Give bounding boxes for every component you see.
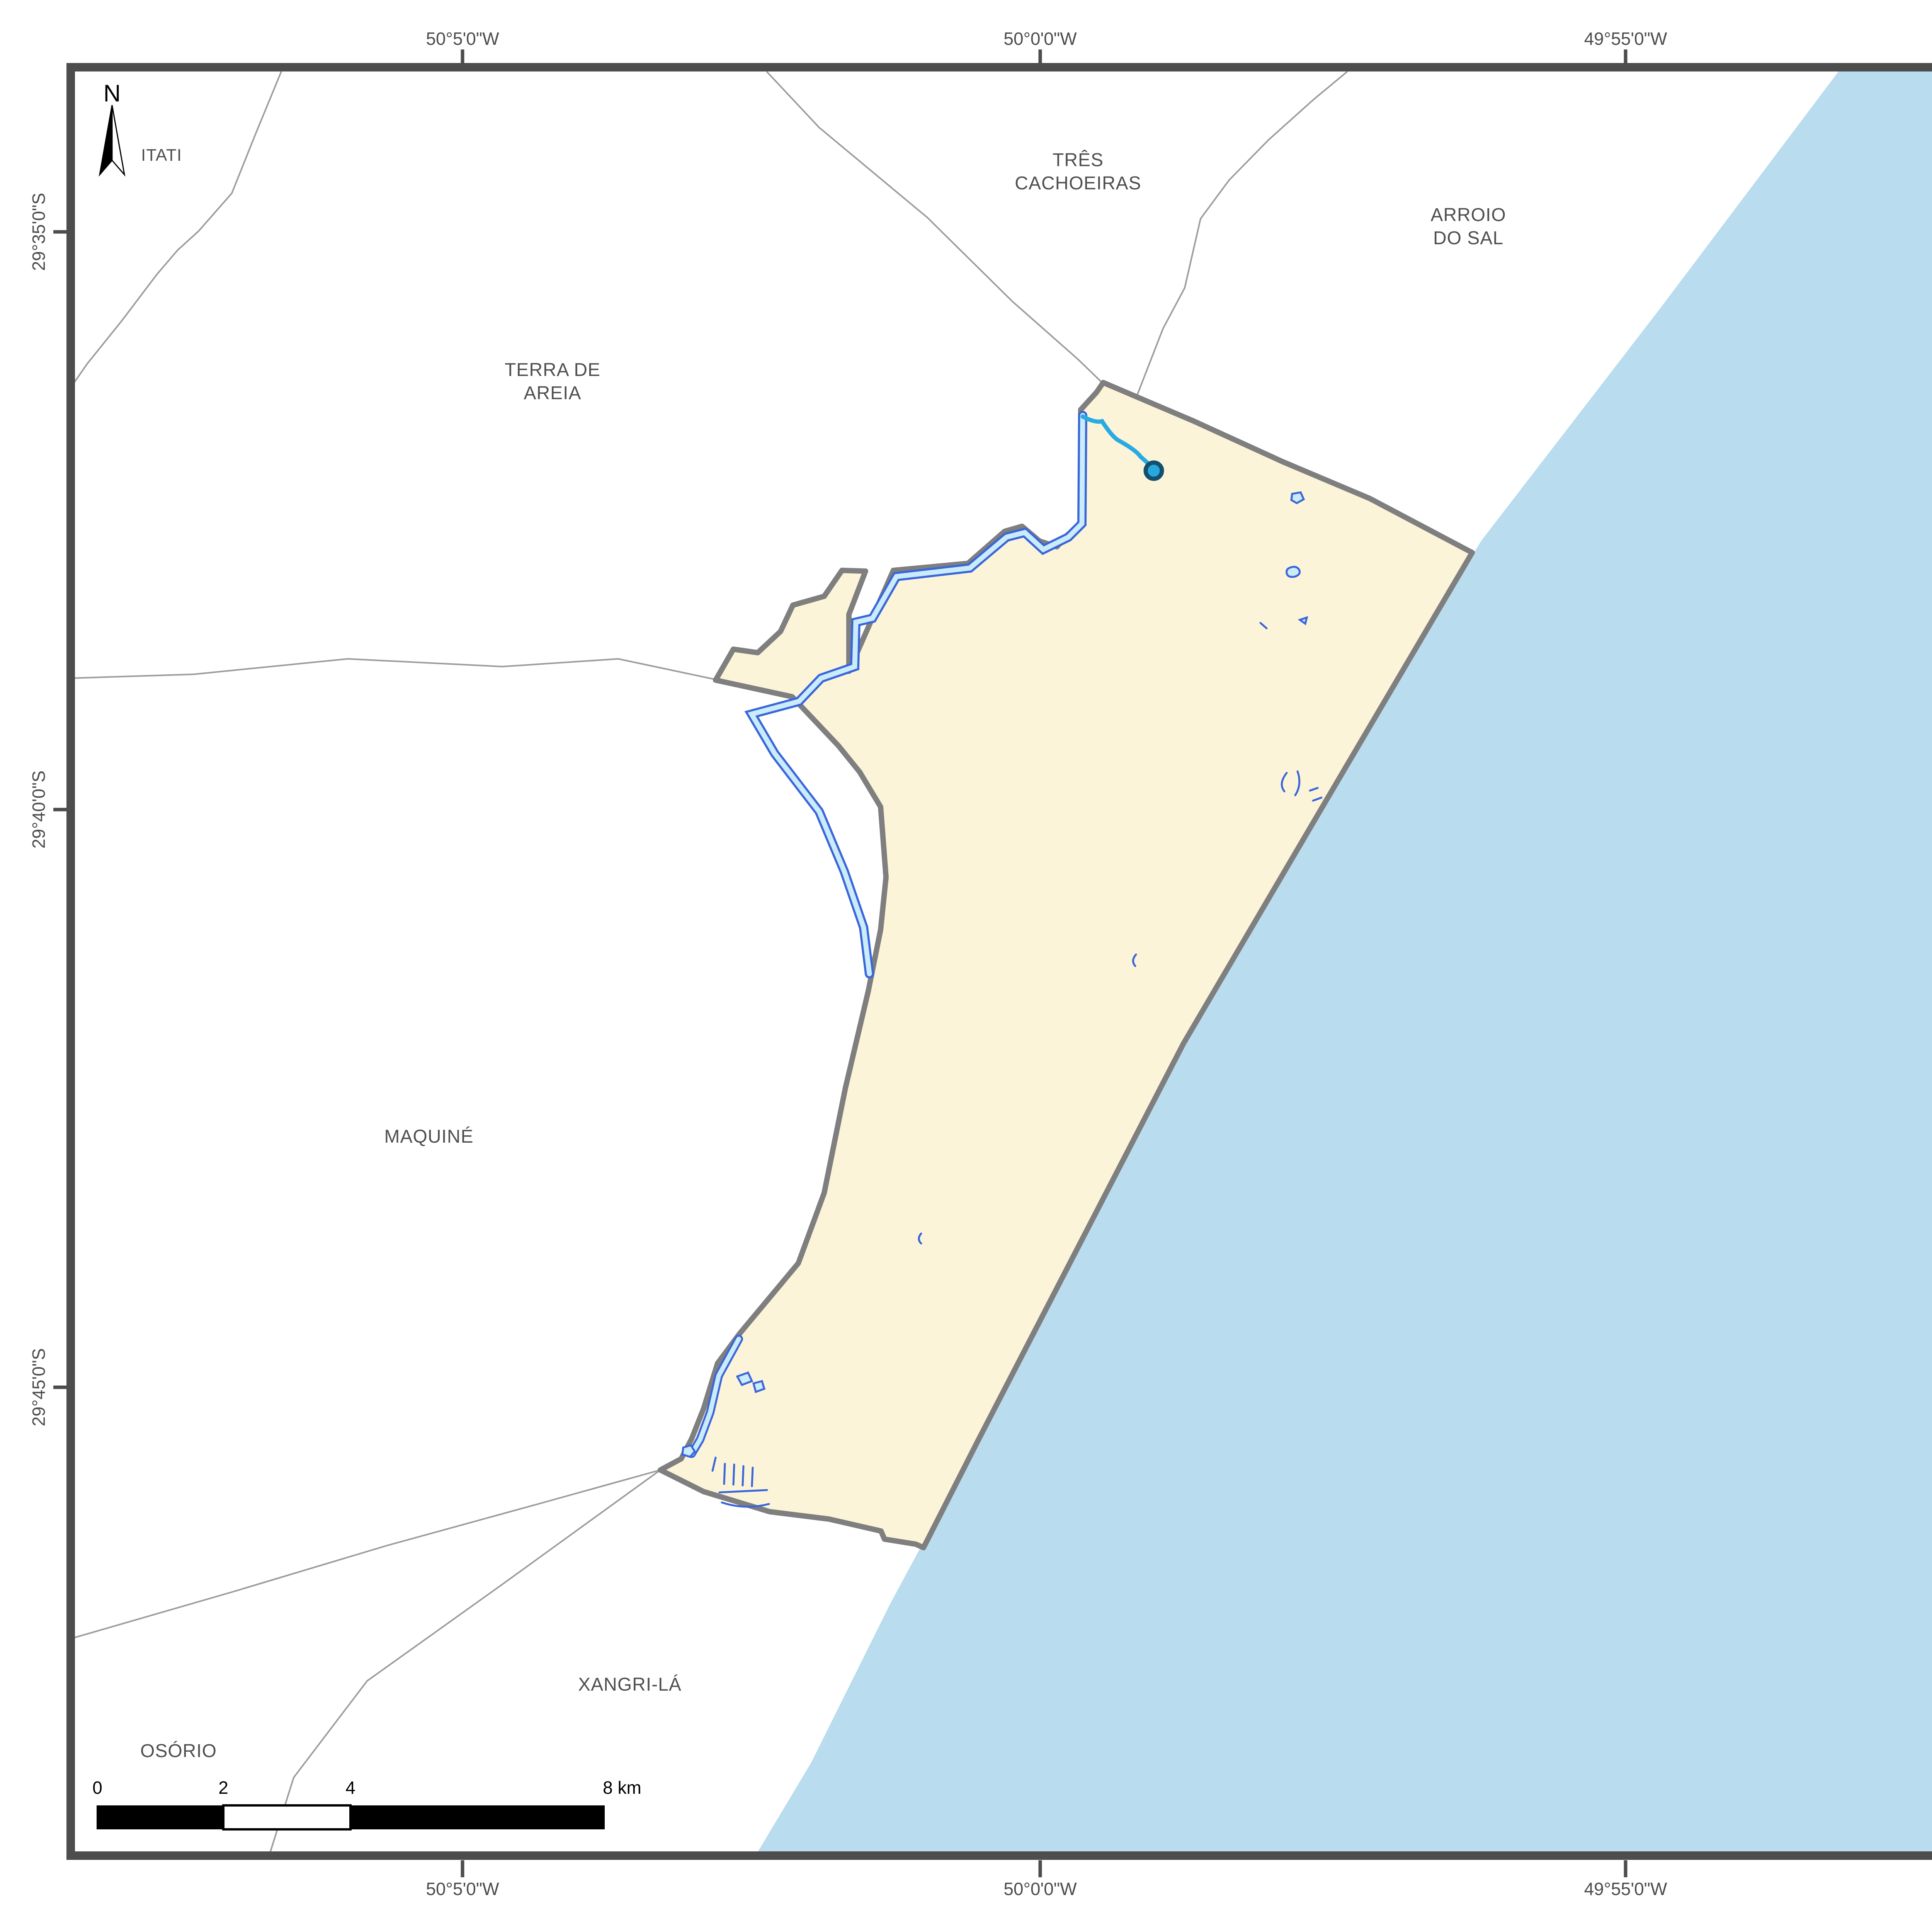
- scale-bar: [97, 1805, 605, 1829]
- map-label-maquine: MAQUINÉ: [384, 1125, 473, 1148]
- axis-left-3: 29°45'0"S: [28, 1348, 49, 1426]
- axis-bottom-3: 49°55'0"W: [1584, 1878, 1667, 1899]
- axis-top-2: 50°0'0"W: [1003, 28, 1077, 49]
- map-canvas: [0, 0, 1932, 1919]
- axis-bottom-2: 50°0'0"W: [1003, 1878, 1077, 1899]
- scale-label-0: 0: [92, 1777, 102, 1798]
- scale-label-4: 4: [345, 1777, 355, 1798]
- map-label-arroio-do-sal: ARROIO DO SAL: [1430, 204, 1506, 250]
- axis-top-3: 49°55'0"W: [1584, 28, 1667, 49]
- map-label-xangri-la: XANGRI-LÁ: [578, 1673, 682, 1696]
- map-label-osorio: OSÓRIO: [140, 1740, 217, 1763]
- axis-left-2: 29°40'0"S: [28, 771, 49, 849]
- axis-bottom-1: 50°5'0"W: [426, 1878, 499, 1899]
- map-label-itati: ITATI: [141, 144, 182, 167]
- axis-left-1: 29°35'0"S: [28, 193, 49, 271]
- nascente-point: [1146, 463, 1162, 479]
- map-label-tres-cachoeiras: TRÊS CACHOEIRAS: [1015, 149, 1141, 195]
- map-label-terra-de-areia: TERRA DE AREIA: [505, 359, 600, 405]
- axis-top-1: 50°5'0"W: [426, 28, 499, 49]
- scale-label-8km: 8 km: [603, 1777, 641, 1798]
- north-label: N: [104, 80, 121, 107]
- scale-label-2: 2: [218, 1777, 228, 1798]
